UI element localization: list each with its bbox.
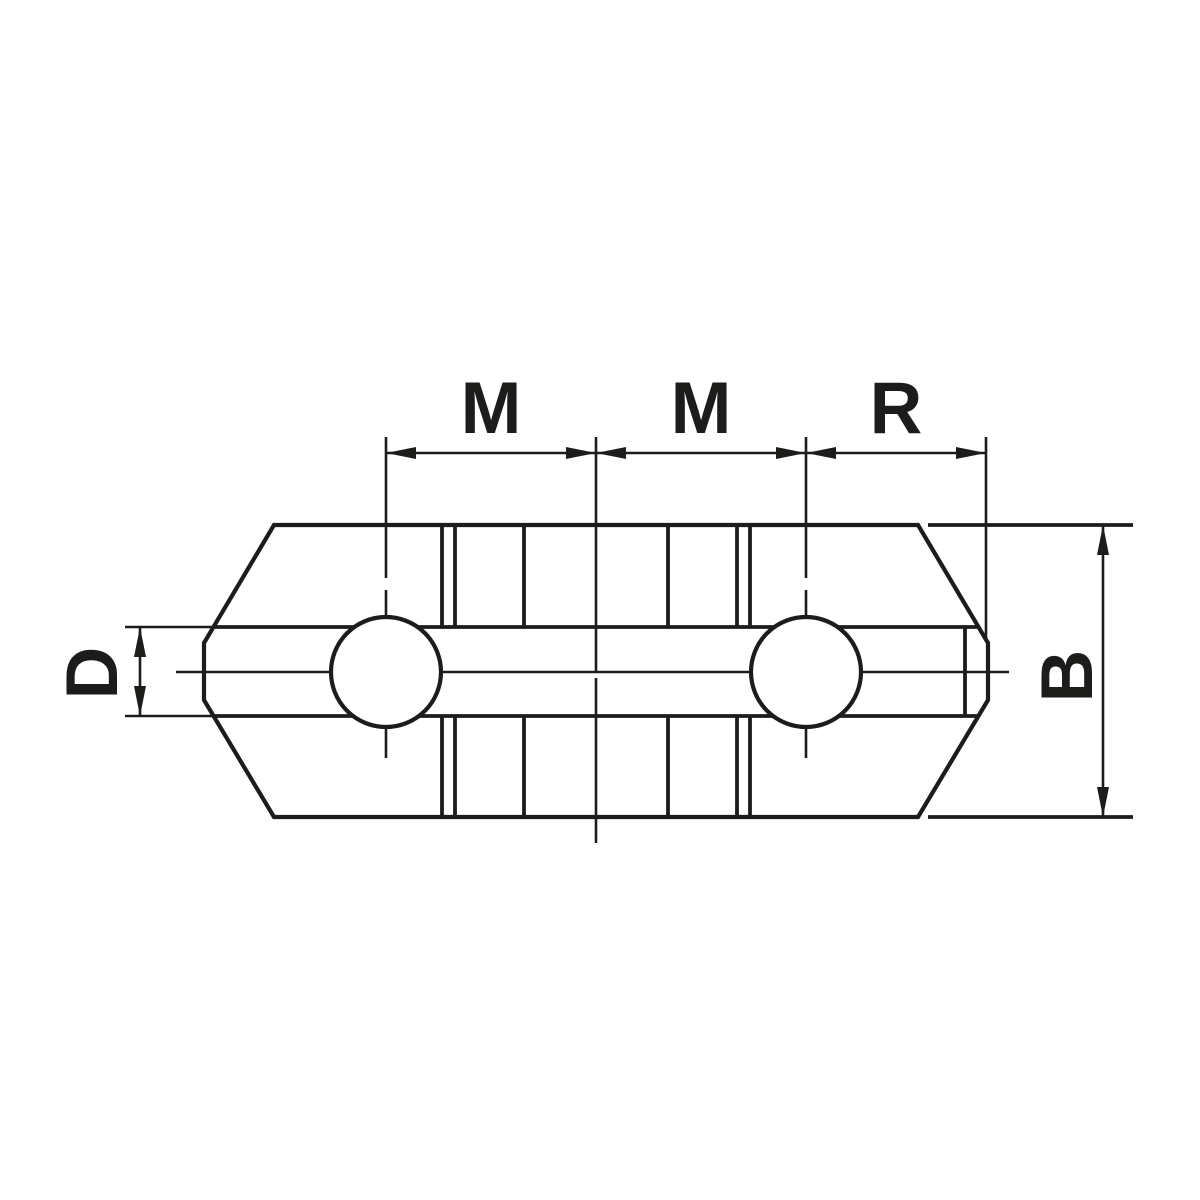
- jaw-technical-drawing: M M R D B: [0, 0, 1200, 1200]
- dimension-chain-top: M M R: [386, 368, 986, 459]
- vertical-centerlines: [386, 437, 986, 843]
- dimension-label-d: D: [52, 647, 133, 700]
- dimension-label-m-left: M: [461, 368, 522, 449]
- dimension-label-m-right: M: [671, 368, 732, 449]
- right-hole: [751, 617, 861, 727]
- dimension-label-r: R: [870, 368, 923, 449]
- left-hole: [331, 617, 441, 727]
- drawing-canvas: M M R D B: [0, 0, 1200, 1200]
- dimension-label-b: B: [1027, 650, 1108, 703]
